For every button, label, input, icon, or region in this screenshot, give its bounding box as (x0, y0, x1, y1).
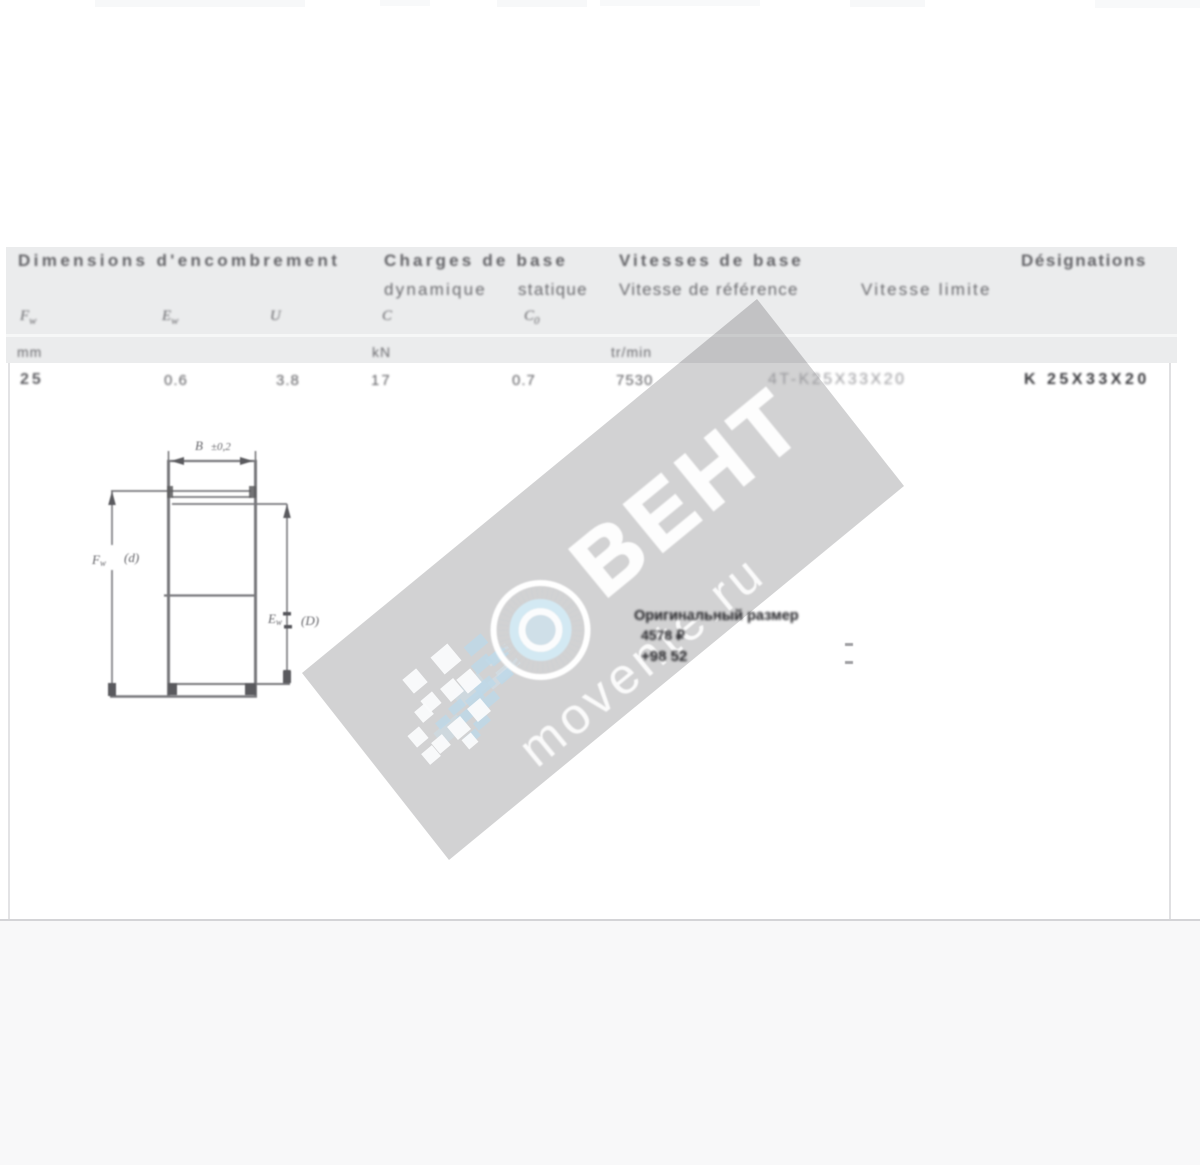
svg-text:Ew: Ew (267, 611, 282, 627)
svg-text:±0,2: ±0,2 (211, 441, 231, 453)
svg-text:B: B (195, 438, 203, 453)
svg-text:Fw: Fw (91, 552, 106, 568)
svg-text:(D): (D) (301, 613, 319, 628)
svg-text:(d): (d) (124, 550, 139, 565)
